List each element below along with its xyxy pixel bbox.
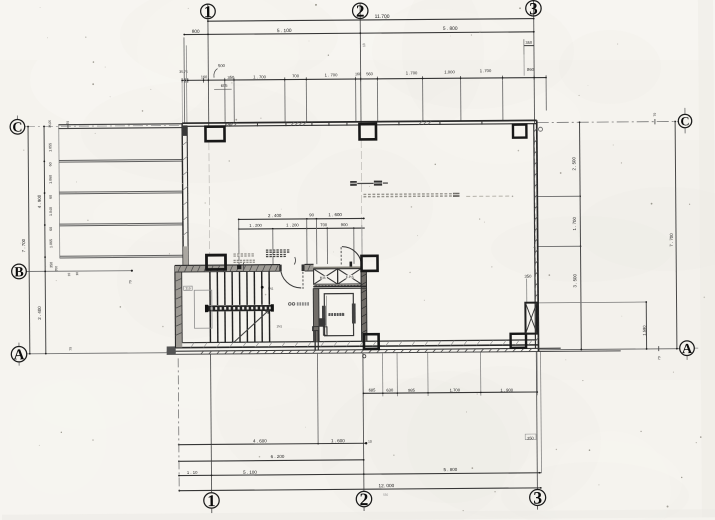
- svg-text:7 . 700: 7 . 700: [669, 233, 674, 247]
- svg-text:10: 10: [362, 43, 366, 47]
- svg-text:1 . 700: 1 . 700: [253, 74, 267, 79]
- svg-text:6 . 200: 6 . 200: [271, 454, 285, 459]
- svg-text:5N1: 5N1: [268, 287, 274, 291]
- svg-text:4 . 600: 4 . 600: [253, 438, 267, 443]
- svg-text:5 . 100: 5 . 100: [243, 470, 257, 475]
- svg-text:1 . 600: 1 . 600: [331, 438, 345, 443]
- svg-text:2 . 400: 2 . 400: [268, 213, 282, 218]
- svg-text:11.700: 11.700: [375, 14, 390, 20]
- svg-text:860: 860: [527, 67, 535, 72]
- svg-text:160: 160: [201, 75, 207, 79]
- svg-text:350: 350: [525, 40, 532, 45]
- svg-text:5 . 800: 5 . 800: [443, 467, 457, 472]
- svg-text:10: 10: [368, 440, 372, 444]
- svg-text:1 .700: 1 .700: [480, 68, 492, 73]
- svg-text:1 . 900: 1 . 900: [500, 387, 514, 392]
- svg-text:1 . 700: 1 . 700: [325, 72, 339, 77]
- svg-text:4 . 900: 4 . 900: [37, 194, 42, 208]
- svg-text:5 . 800: 5 . 800: [443, 26, 458, 32]
- svg-text:60: 60: [49, 227, 53, 231]
- svg-text:350: 350: [524, 274, 532, 279]
- svg-text:C: C: [680, 114, 689, 128]
- svg-text:70: 70: [69, 347, 73, 351]
- svg-text:1: 1: [207, 491, 215, 510]
- svg-text:1.700: 1.700: [450, 387, 461, 392]
- svg-text:5 . 100: 5 . 100: [277, 28, 292, 34]
- svg-text:985: 985: [408, 388, 416, 393]
- svg-text:900: 900: [341, 222, 349, 227]
- svg-text:2 . 400: 2 . 400: [37, 306, 42, 320]
- svg-text:1 . 10: 1 . 10: [187, 470, 198, 475]
- svg-text:1.040: 1.040: [49, 207, 53, 216]
- svg-text:C: C: [12, 121, 22, 136]
- svg-text:1 . 200: 1 . 200: [286, 222, 299, 227]
- svg-text:550: 550: [383, 493, 388, 497]
- svg-text:B: B: [14, 265, 23, 280]
- svg-text:M.B: M.B: [320, 276, 326, 280]
- svg-text:560: 560: [366, 71, 373, 76]
- svg-text:1.055: 1.055: [48, 143, 52, 152]
- svg-text:700: 700: [292, 73, 300, 78]
- svg-text:2 . 500: 2 . 500: [571, 157, 576, 171]
- svg-text:1 . 700: 1 . 700: [572, 217, 577, 231]
- svg-text:35,05: 35,05: [48, 120, 52, 128]
- svg-text:500: 500: [218, 63, 226, 68]
- svg-text:3 . 500: 3 . 500: [572, 274, 577, 288]
- svg-text:60: 60: [49, 195, 53, 199]
- svg-text:160: 160: [355, 72, 361, 76]
- svg-text:350: 350: [54, 266, 58, 272]
- svg-text:1 . 200: 1 . 200: [249, 223, 262, 228]
- svg-text:800: 800: [192, 29, 200, 34]
- svg-text:1 . 600: 1 . 600: [328, 212, 342, 217]
- svg-text:350: 350: [49, 262, 53, 268]
- svg-text:70: 70: [657, 356, 661, 360]
- svg-text:700: 700: [320, 222, 328, 227]
- svg-text:630: 630: [386, 388, 394, 393]
- svg-text:7 . 700: 7 . 700: [21, 238, 26, 252]
- svg-text:A: A: [14, 347, 25, 363]
- svg-text:12. 000: 12. 000: [379, 483, 395, 488]
- svg-text:1.060: 1.060: [49, 175, 53, 184]
- svg-text:70: 70: [128, 280, 132, 284]
- svg-text:10: 10: [67, 273, 71, 277]
- svg-text:1.590: 1.590: [642, 325, 647, 336]
- svg-text:60: 60: [49, 162, 53, 166]
- svg-text:1: 1: [204, 2, 212, 21]
- svg-text:E.P.S: E.P.S: [346, 275, 354, 279]
- svg-text:70: 70: [653, 113, 657, 117]
- svg-text:1.000: 1.000: [444, 69, 455, 74]
- svg-text:3: 3: [529, 0, 538, 18]
- svg-text:90: 90: [309, 212, 314, 217]
- svg-text:1.065: 1.065: [49, 239, 53, 248]
- svg-text:1 .700: 1 .700: [406, 70, 418, 75]
- svg-text:685: 685: [369, 387, 377, 392]
- svg-text:2: 2: [356, 2, 365, 21]
- svg-text:10: 10: [75, 272, 79, 276]
- svg-text:2: 2: [360, 489, 369, 509]
- svg-text:A: A: [682, 342, 693, 357]
- svg-text:350: 350: [227, 75, 235, 80]
- svg-text:1N1: 1N1: [277, 324, 283, 328]
- svg-text:3: 3: [533, 487, 542, 507]
- svg-text:310: 310: [185, 287, 190, 291]
